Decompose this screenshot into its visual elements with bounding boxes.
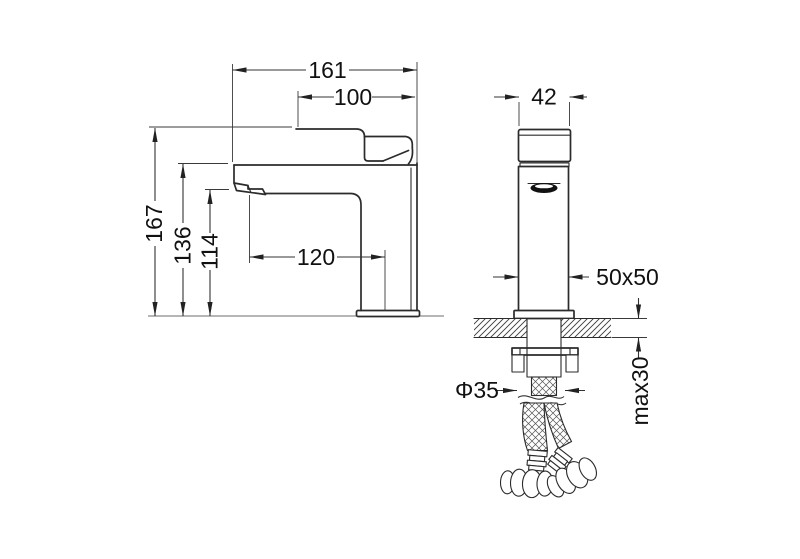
dim-spout-outlet-height: 114	[197, 190, 230, 317]
dim-handle-width: 42	[494, 84, 587, 127]
handle-front	[519, 130, 571, 167]
faucet-body-side	[234, 62, 417, 311]
hose-nut-left	[500, 469, 553, 499]
front-view: 42 50x50 Φ35 max30	[455, 84, 659, 502]
side-view: 161 100 167 136	[141, 57, 444, 317]
dim-spout-reach: 120	[250, 195, 386, 311]
dim-max-deck-thickness: max30	[612, 298, 653, 426]
dim-overall-height: 167	[141, 127, 292, 316]
hose-fitting-left	[527, 450, 548, 472]
dim-handle-projection: 100	[298, 84, 416, 127]
counter-hatch-right	[561, 319, 611, 338]
threaded-shank	[527, 319, 561, 349]
dim-overall-length: 161	[233, 57, 418, 162]
hose-break-line	[518, 396, 564, 399]
supply-hoses	[500, 377, 601, 502]
dim-label-114: 114	[197, 233, 223, 270]
base-plate-front	[514, 311, 574, 319]
dim-label-136: 136	[170, 226, 196, 264]
dim-label-167: 167	[141, 204, 167, 242]
hose-right	[544, 403, 572, 449]
dim-supply-hole-diameter: Φ35	[455, 377, 585, 403]
base-plate-side	[357, 311, 420, 317]
countertop-section	[474, 319, 611, 349]
handle-lever-side	[296, 129, 413, 164]
dim-label-max30: max30	[627, 356, 653, 425]
dim-label-phi35: Φ35	[455, 377, 499, 403]
faucet-body-front	[514, 167, 574, 319]
dim-label-50x50: 50x50	[596, 264, 659, 290]
dim-label-100: 100	[334, 84, 372, 110]
counter-hatch-left	[474, 319, 527, 338]
mounting-hardware	[512, 348, 578, 377]
hose-left	[523, 403, 548, 451]
drawing-canvas: 161 100 167 136	[0, 0, 800, 559]
dim-label-161: 161	[308, 57, 346, 83]
dim-label-120: 120	[297, 244, 335, 270]
dim-label-42: 42	[531, 84, 557, 110]
faucet-dimension-drawing: 161 100 167 136	[0, 0, 800, 559]
